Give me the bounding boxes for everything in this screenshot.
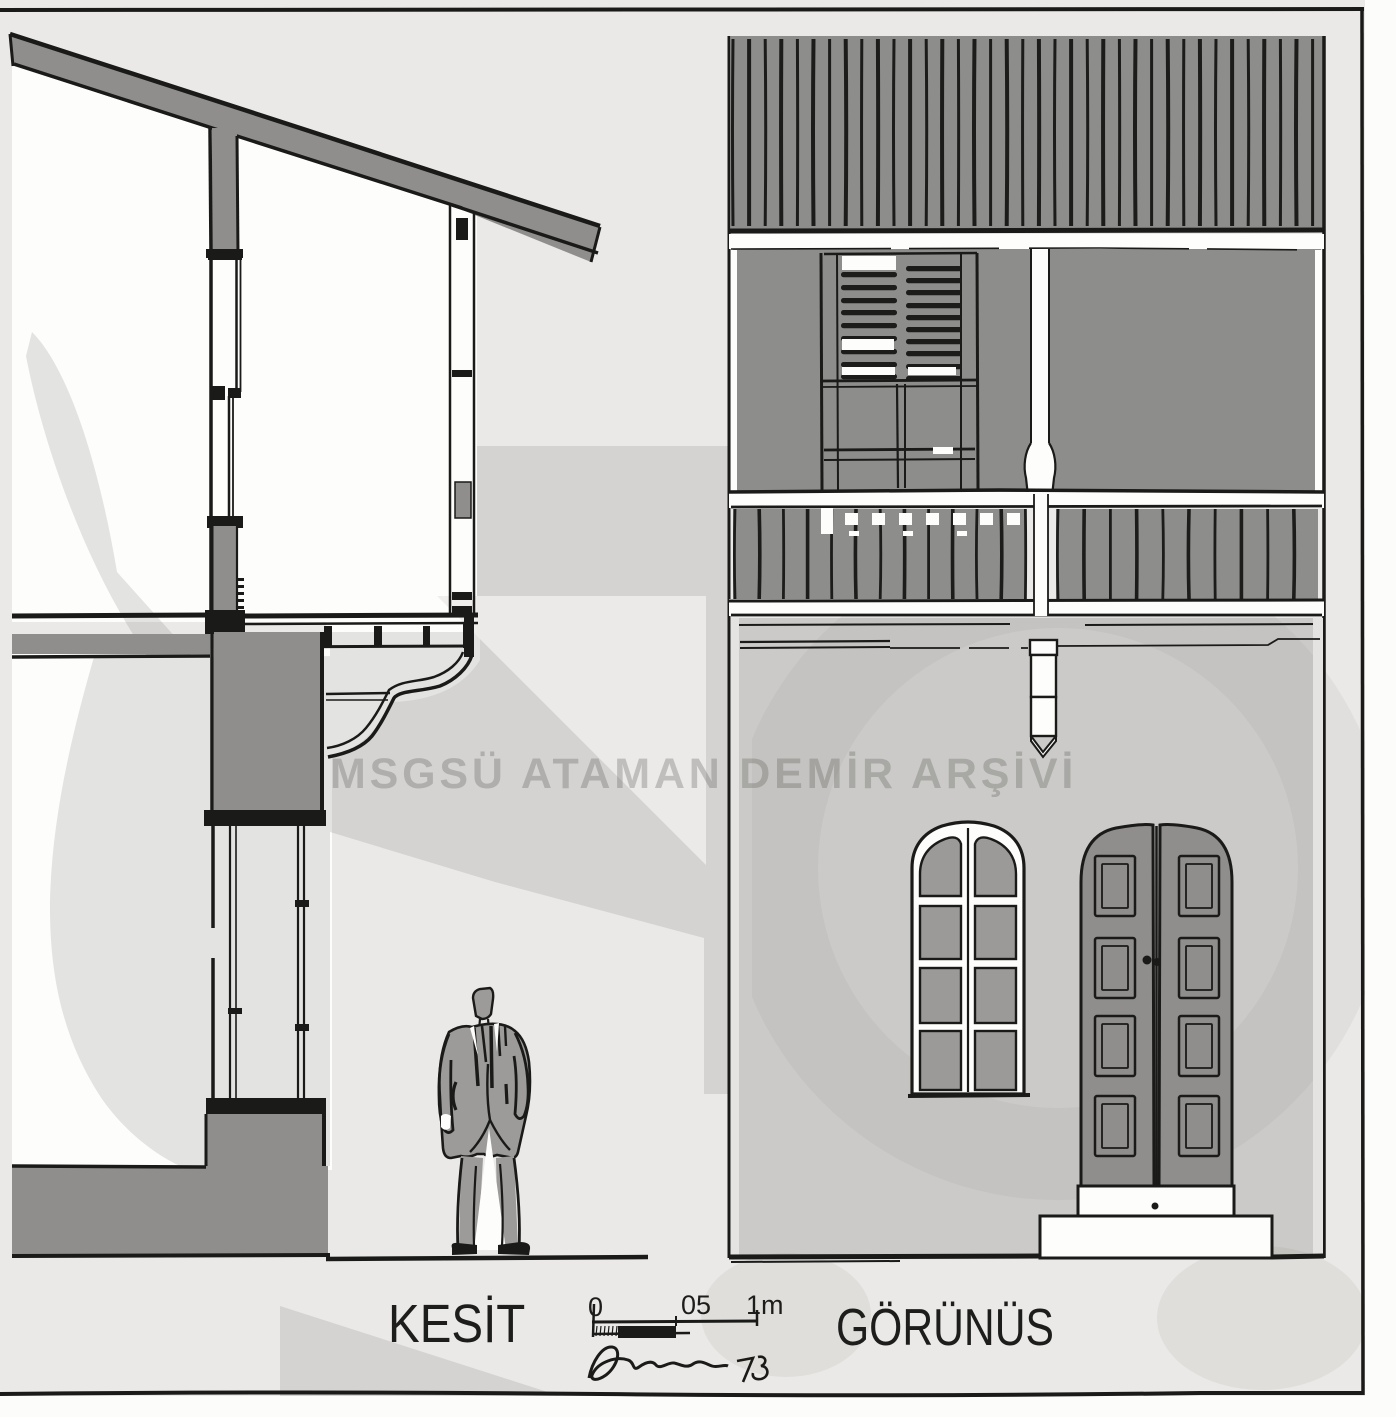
svg-text:KESİT: KESİT — [388, 1293, 525, 1354]
svg-text:1m: 1m — [746, 1290, 784, 1320]
svg-text:GÖRÜNÜS: GÖRÜNÜS — [836, 1299, 1054, 1357]
svg-text:MSGSÜ ATAMAN DEMİR ARŞİVİ: MSGSÜ ATAMAN DEMİR ARŞİVİ — [330, 750, 1077, 798]
svg-text:0: 0 — [588, 1292, 603, 1322]
svg-text:05: 05 — [681, 1290, 711, 1320]
